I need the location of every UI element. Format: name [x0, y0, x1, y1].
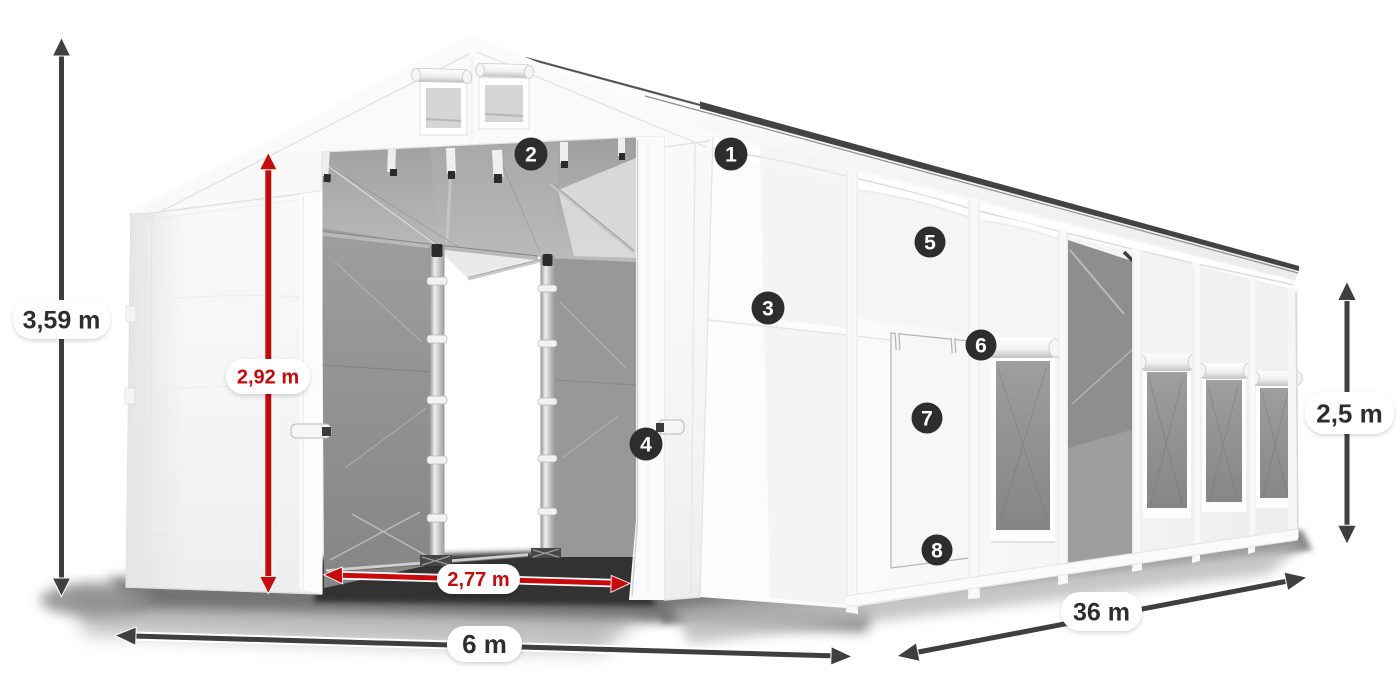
svg-text:6 m: 6 m — [462, 629, 507, 659]
svg-text:4: 4 — [640, 434, 652, 457]
svg-text:8: 8 — [931, 540, 943, 563]
svg-text:36 m: 36 m — [1073, 599, 1130, 627]
svg-text:7: 7 — [921, 408, 933, 431]
svg-text:2,77 m: 2,77 m — [447, 569, 509, 591]
svg-text:6: 6 — [975, 335, 987, 358]
svg-text:2: 2 — [525, 144, 537, 167]
svg-text:2,5 m: 2,5 m — [1316, 399, 1383, 429]
svg-text:3,59 m: 3,59 m — [23, 307, 101, 335]
svg-text:1: 1 — [725, 144, 737, 167]
svg-text:3: 3 — [762, 298, 774, 321]
svg-text:2,92 m: 2,92 m — [237, 367, 299, 389]
svg-text:5: 5 — [924, 232, 936, 255]
